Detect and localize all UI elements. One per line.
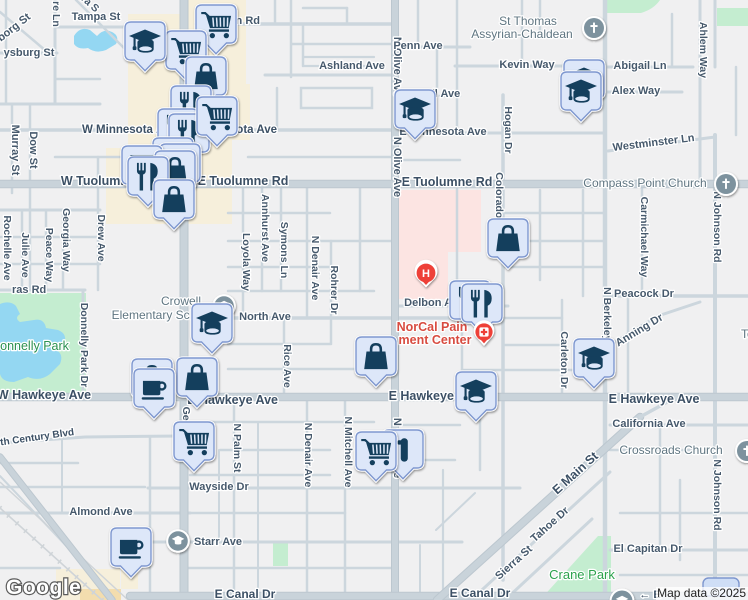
svg-text:Google: Google <box>6 576 81 599</box>
svg-text:Tampa St: Tampa St <box>72 11 121 23</box>
svg-text:Dow St: Dow St <box>27 131 39 169</box>
svg-text:N Mitchell Ave: N Mitchell Ave <box>342 417 354 488</box>
svg-text:Julie Ave: Julie Ave <box>19 232 31 277</box>
svg-text:Kevin Way: Kevin Way <box>499 59 555 71</box>
svg-text:re Ln: re Ln <box>50 1 62 27</box>
svg-text:Wayside Dr: Wayside Dr <box>189 481 249 493</box>
svg-text:Carmichael Way: Carmichael Way <box>638 197 650 278</box>
svg-text:Ahlem Way: Ahlem Way <box>697 22 709 78</box>
svg-text:Penn Ave: Penn Ave <box>393 40 442 52</box>
svg-text:Crossroads Church: Crossroads Church <box>619 443 722 457</box>
svg-text:E Canal Dr: E Canal Dr <box>215 587 276 600</box>
svg-text:ment Center: ment Center <box>399 333 472 347</box>
svg-text:Peace Way: Peace Way <box>43 228 55 283</box>
svg-text:Abigail Ln: Abigail Ln <box>613 60 666 72</box>
svg-text:Loyola Way: Loyola Way <box>240 233 252 291</box>
svg-text:N Palm St: N Palm St <box>231 423 243 473</box>
svg-text:Crane Park: Crane Park <box>549 567 615 582</box>
svg-text:Alex Way: Alex Way <box>612 85 661 97</box>
svg-text:E Tuolumne Rd: E Tuolumne Rd <box>402 175 493 189</box>
svg-text:H: H <box>422 268 430 280</box>
svg-text:ras Rd: ras Rd <box>12 284 46 296</box>
svg-text:El Capitan Dr: El Capitan Dr <box>613 543 683 555</box>
svg-text:Peacock Dr: Peacock Dr <box>614 288 675 300</box>
svg-text:E Hawkeye Ave: E Hawkeye Ave <box>609 392 700 406</box>
svg-text:Map data ©2025: Map data ©2025 <box>657 586 746 600</box>
svg-text:Rochelle Ave: Rochelle Ave <box>1 215 13 280</box>
svg-text:Donnelly Park: Donnelly Park <box>0 339 70 353</box>
svg-text:Symons Ln: Symons Ln <box>278 222 290 279</box>
svg-text:Donnelly Park Dr: Donnelly Park Dr <box>78 303 90 388</box>
svg-text:Murray St: Murray St <box>9 125 21 176</box>
svg-text:W Hawkeye Ave: W Hawkeye Ave <box>0 388 91 402</box>
svg-text:Georgia Way: Georgia Way <box>60 208 72 272</box>
svg-text:North Ave: North Ave <box>239 311 291 323</box>
svg-text:E Tuolumne Rd: E Tuolumne Rd <box>198 174 289 188</box>
svg-text:ysburg St: ysburg St <box>4 47 55 59</box>
svg-text:E Canal Dr: E Canal Dr <box>450 586 511 600</box>
svg-text:n Rd: n Rd <box>236 15 260 27</box>
svg-text:N Johnson Rd: N Johnson Rd <box>711 459 723 530</box>
svg-text:Rohrer Dr: Rohrer Dr <box>328 265 340 314</box>
svg-text:Starr Ave: Starr Ave <box>194 536 242 548</box>
svg-text:Annhurst Ave: Annhurst Ave <box>259 194 271 262</box>
svg-text:Carleton Dr: Carleton Dr <box>558 331 570 388</box>
svg-text:Almond Ave: Almond Ave <box>69 506 132 518</box>
svg-text:Rice Ave: Rice Ave <box>281 344 293 388</box>
svg-text:California Ave: California Ave <box>612 418 685 430</box>
svg-text:W Minnesota A: W Minnesota A <box>82 124 164 136</box>
svg-text:N Johnson Rd: N Johnson Rd <box>711 191 723 262</box>
svg-text:Drew Ave: Drew Ave <box>95 214 107 261</box>
svg-text:Assyrian-Chaldean: Assyrian-Chaldean <box>471 27 572 41</box>
svg-text:NorCal Pain: NorCal Pain <box>397 320 468 334</box>
svg-text:Compass Point Church: Compass Point Church <box>583 176 706 190</box>
svg-text:N Denair Ave: N Denair Ave <box>309 236 321 301</box>
svg-text:N Olive Ave: N Olive Ave <box>391 137 403 197</box>
svg-text:N Denair Ave: N Denair Ave <box>302 423 314 488</box>
svg-text:Ashland Ave: Ashland Ave <box>319 60 385 72</box>
svg-text:Hogan Dr: Hogan Dr <box>502 106 514 153</box>
svg-text:St Thomas: St Thomas <box>499 14 557 28</box>
svg-text:To: To <box>741 327 748 341</box>
